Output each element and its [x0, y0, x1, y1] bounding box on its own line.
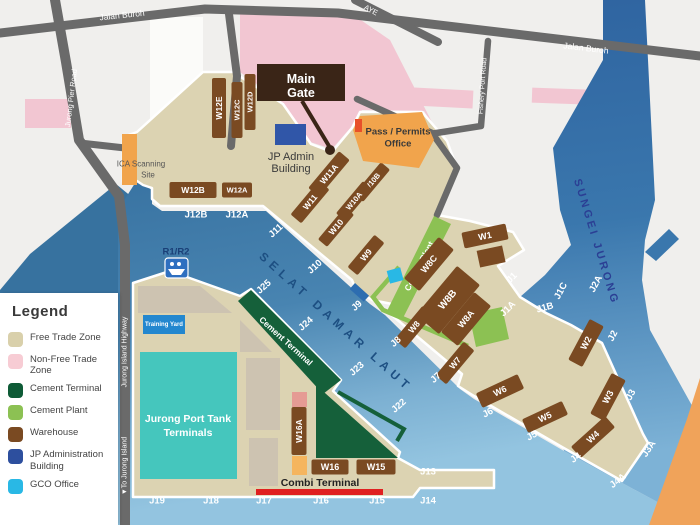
berth-label-j12b: J12B: [185, 210, 208, 221]
road-label: Jurong Island Highway: [122, 316, 129, 387]
warehouse-label-w12c: W12C: [233, 99, 242, 120]
ferry-icon-detail: [177, 262, 181, 266]
training-yard-label: Training Yard: [145, 322, 183, 328]
legend-item-cement-terminal: Cement Terminal: [0, 380, 118, 402]
jp-administration-building-swatch: [8, 449, 23, 464]
pass-permits-label: Office: [385, 139, 412, 150]
combi-terminal-bar: [256, 489, 383, 495]
warehouse-label-w15: W15: [367, 462, 386, 472]
legend-item-non-free-trade-zone: Non-Free Trade Zone: [0, 350, 118, 380]
w16a-orange: [292, 456, 307, 475]
road-label: ▼To Jurong Island: [122, 437, 129, 495]
ferry-icon-detail: [170, 262, 174, 266]
pass-permits-label: Pass / Permits: [366, 127, 431, 138]
main-gate-label: Gate: [287, 86, 315, 100]
legend-item-jp-administration-building: JP Administration Building: [0, 446, 118, 476]
warehouse-label-w16a: W16A: [294, 419, 304, 443]
warehouse-label-w12b: W12B: [181, 185, 205, 195]
yard-patch: [249, 438, 278, 486]
legend-item-cement-plant: Cement Plant: [0, 402, 118, 424]
warehouse-label-w12d: W12D: [246, 91, 255, 112]
cement-terminal-swatch: [8, 383, 23, 398]
berth-label-j15: J15: [369, 496, 386, 507]
berth-label-j14: J14: [420, 496, 437, 507]
berth-label-j18: J18: [203, 496, 219, 507]
non-free-trade-zone: [414, 87, 474, 108]
tank-terminals-label: Terminals: [164, 427, 213, 439]
main-gate-label: Main: [287, 72, 315, 86]
pass-permits-marker: [355, 119, 362, 132]
free-trade-zone-swatch: [8, 332, 23, 347]
r1r2-label: R1/R2: [163, 247, 190, 258]
jp-admin-label: Building: [271, 163, 310, 175]
legend-item-free-trade-zone: Free Trade Zone: [0, 328, 118, 350]
road-ica-branch: [80, 143, 125, 148]
jp-admin-label: JP Admin: [268, 151, 314, 163]
berth-label-j16: J16: [313, 496, 329, 507]
warehouse-label-w12a: W12A: [227, 186, 248, 195]
ica-label: Site: [141, 171, 155, 180]
ica-label: ICA Scanning: [117, 160, 165, 169]
gco-office-swatch: [8, 479, 23, 494]
yard-patch: [246, 358, 280, 430]
berth-label-j13: J13: [420, 467, 436, 478]
warehouse-label-w12e: W12E: [214, 96, 224, 119]
tank-terminals-label: Jurong Port Tank: [145, 413, 231, 425]
berth-label-j19: J19: [149, 496, 165, 507]
legend-item-warehouse: Warehouse: [0, 424, 118, 446]
w16a-marker: [292, 392, 307, 407]
warehouse-label-w16: W16: [321, 462, 340, 472]
port-map-screenshot: Jalan BurohJalan BurohJurong Pier RoadAY…: [0, 0, 700, 525]
legend-title: Legend: [12, 303, 118, 320]
non-free-trade-zone-swatch: [8, 354, 23, 369]
berth-label-j17: J17: [256, 496, 272, 507]
berth-label-j12a: J12A: [226, 210, 249, 221]
cement-plant-swatch: [8, 405, 23, 420]
legend-item-gco-office: GCO Office: [0, 476, 118, 498]
jp-admin-building: [275, 124, 306, 145]
map-legend: Legend Free Trade Zone Non-Free Trade Zo…: [0, 293, 118, 525]
combi-terminal-label: Combi Terminal: [281, 477, 360, 489]
main-gate-dot: [325, 145, 335, 155]
warehouse-swatch: [8, 427, 23, 442]
